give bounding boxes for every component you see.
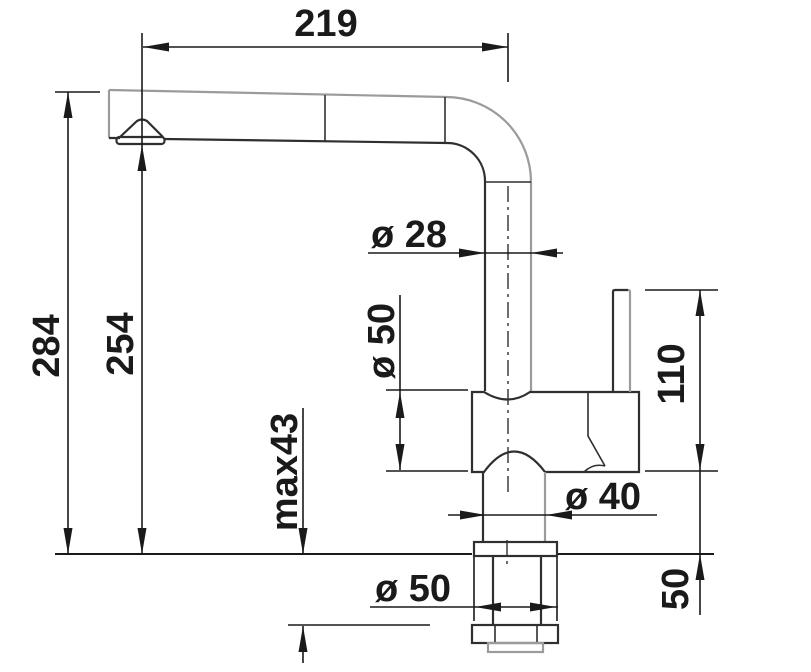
dimension-total-height: 284 (26, 92, 100, 554)
dim-line-110-50 (645, 290, 718, 615)
dimension-base-diameter: ø 50 (370, 557, 558, 621)
arrow-left-o28 (459, 249, 485, 258)
arrow-left-219 (143, 43, 169, 52)
dim-label-under-counter-height: 50 (655, 568, 697, 610)
dimension-body-diameter: ø 50 (361, 295, 468, 471)
dim-line-max43 (288, 408, 430, 663)
nut-facets (495, 625, 537, 643)
arrow-bottom-110 (696, 444, 705, 470)
dim-label-spout-reach: 219 (294, 3, 357, 45)
dim-label-spout-pipe-diameter: ø 28 (371, 214, 447, 256)
aerator-face (117, 137, 165, 144)
mounting-nut (472, 625, 558, 643)
threaded-shank (493, 556, 541, 625)
arrow-bottom-284 (64, 528, 73, 554)
handle-mount-joint (584, 392, 605, 472)
dim-label-total-height: 284 (26, 314, 68, 377)
lever-left-edge (613, 290, 628, 392)
arrow-right-o28 (531, 249, 557, 258)
dim-label-spout-outlet-height: 254 (100, 312, 142, 375)
dim-label-base-diameter: ø 50 (375, 568, 451, 610)
arrow-right-219 (482, 43, 508, 52)
arrow-bottom-o50-body (396, 444, 405, 470)
centerline (507, 186, 508, 568)
dimension-annotations: 219 284 254 max43 ø 28 (26, 3, 718, 663)
base-flange (474, 542, 557, 556)
arrow-right-o50-base (530, 603, 556, 612)
arrow-up-max43 (299, 626, 308, 652)
dim-label-lever-height: 110 (651, 343, 693, 404)
lever-right-edge (628, 290, 630, 392)
dim-label-max-counter-thickness: max43 (264, 413, 306, 531)
dim-label-lower-body-diameter: ø 40 (565, 476, 641, 518)
dim-label-body-diameter: ø 50 (361, 303, 403, 379)
arrow-top-254 (138, 145, 147, 171)
arrow-top-284 (64, 92, 73, 118)
dimension-spout-outlet-height: 254 (100, 33, 147, 554)
spout-top-and-outer-bend (109, 90, 531, 391)
dimension-spout-reach: 219 (143, 3, 508, 82)
spout-bottom-and-inner-bend (109, 138, 485, 391)
dimension-spout-pipe-diameter: ø 28 (368, 214, 563, 258)
mixer-body (472, 392, 639, 472)
shank-end (488, 643, 543, 652)
arrow-bottom-254 (138, 528, 147, 554)
arrow-left-o50-base (475, 603, 501, 612)
dimension-max-counter-thickness: max43 (264, 408, 430, 663)
arrow-top-110 (696, 290, 705, 316)
dimension-lever-height-and-under-counter: 110 50 (645, 290, 718, 615)
dimension-lower-body-diameter: ø 40 (448, 476, 657, 520)
faucet-dimension-drawing: 219 284 254 max43 ø 28 (0, 0, 811, 672)
arrow-top-o50-body (396, 392, 405, 418)
